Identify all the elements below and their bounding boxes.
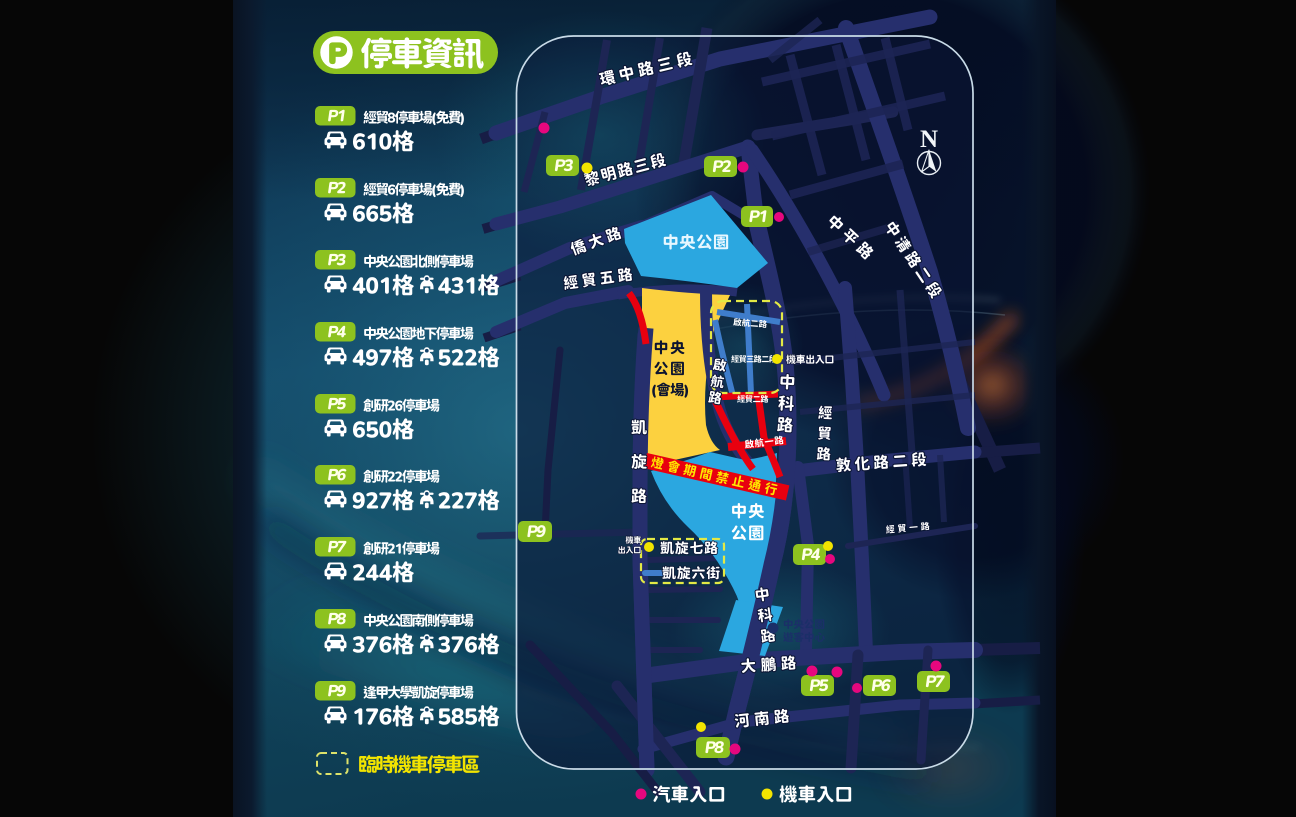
svg-text:N: N [920,126,938,153]
